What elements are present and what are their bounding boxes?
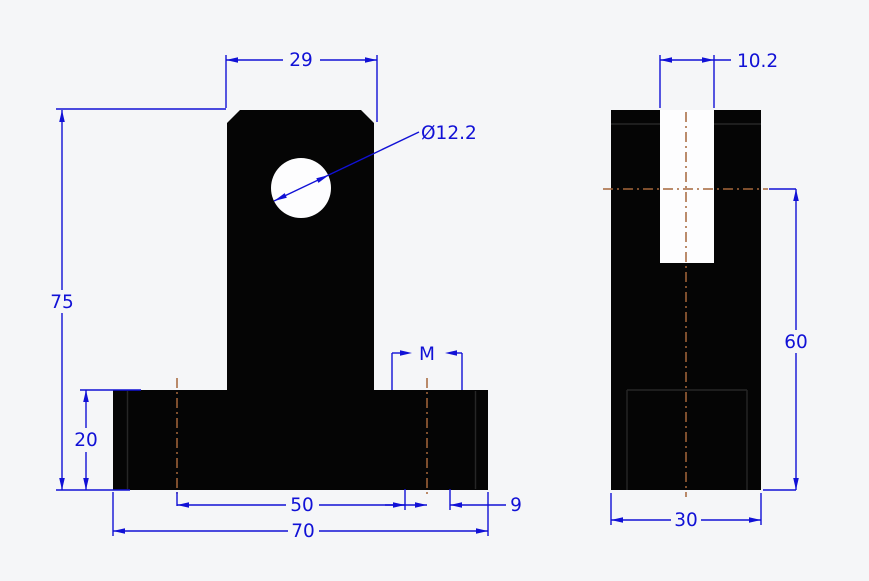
arrow-left — [113, 528, 125, 534]
dim-base-height-label: 20 — [74, 430, 98, 451]
arrow-right — [393, 502, 405, 508]
arrow-right — [476, 528, 488, 534]
arrow-left — [177, 502, 189, 508]
dim-slot-width-label: 10.2 — [737, 51, 778, 72]
arrow-left — [445, 350, 457, 356]
drawing-sheet: 29 Ø12.2 75 20 M — [0, 0, 869, 581]
arrow-right — [400, 350, 412, 356]
arrow-up — [83, 390, 89, 402]
dim-hole-spacing: 50 — [177, 492, 427, 516]
dim-depth: 30 — [611, 493, 761, 531]
dim-hole-diameter-label: Ø12.2 — [421, 123, 477, 144]
front-base — [113, 390, 488, 490]
dim-overall-height-label: 75 — [50, 292, 74, 313]
dim-hole-spacing-label: 50 — [290, 495, 314, 516]
dim-thread-callout-label: M — [419, 344, 435, 365]
arrow-down — [59, 478, 65, 490]
dim-slot-width: 10.2 — [660, 51, 778, 108]
arrow-down — [793, 478, 799, 490]
side-slot — [660, 110, 714, 263]
dim-drill-diameter-label: 9 — [510, 495, 522, 516]
arrow-down — [83, 478, 89, 490]
arrow-left — [450, 502, 462, 508]
arrow-right — [749, 517, 761, 523]
dim-drill-diameter: 9 — [385, 489, 522, 516]
arrow-left — [660, 57, 672, 63]
front-view — [113, 110, 488, 497]
side-view — [603, 110, 768, 497]
dim-column-width-label: 29 — [289, 50, 313, 71]
arrow-right — [415, 502, 427, 508]
front-column — [227, 110, 374, 390]
arrow-up — [793, 189, 799, 201]
dim-depth-label: 30 — [674, 510, 698, 531]
dim-hole-axis-height-label: 60 — [784, 332, 808, 353]
cad-drawing-canvas: 29 Ø12.2 75 20 M — [0, 0, 869, 581]
arrow-left — [611, 517, 623, 523]
dim-base-width-label: 70 — [291, 521, 315, 542]
arrow-left — [226, 57, 238, 63]
arrow-right — [365, 57, 377, 63]
dim-hole-axis-height: 60 — [763, 189, 808, 490]
arrow-right — [702, 57, 714, 63]
arrow-up — [59, 110, 65, 122]
